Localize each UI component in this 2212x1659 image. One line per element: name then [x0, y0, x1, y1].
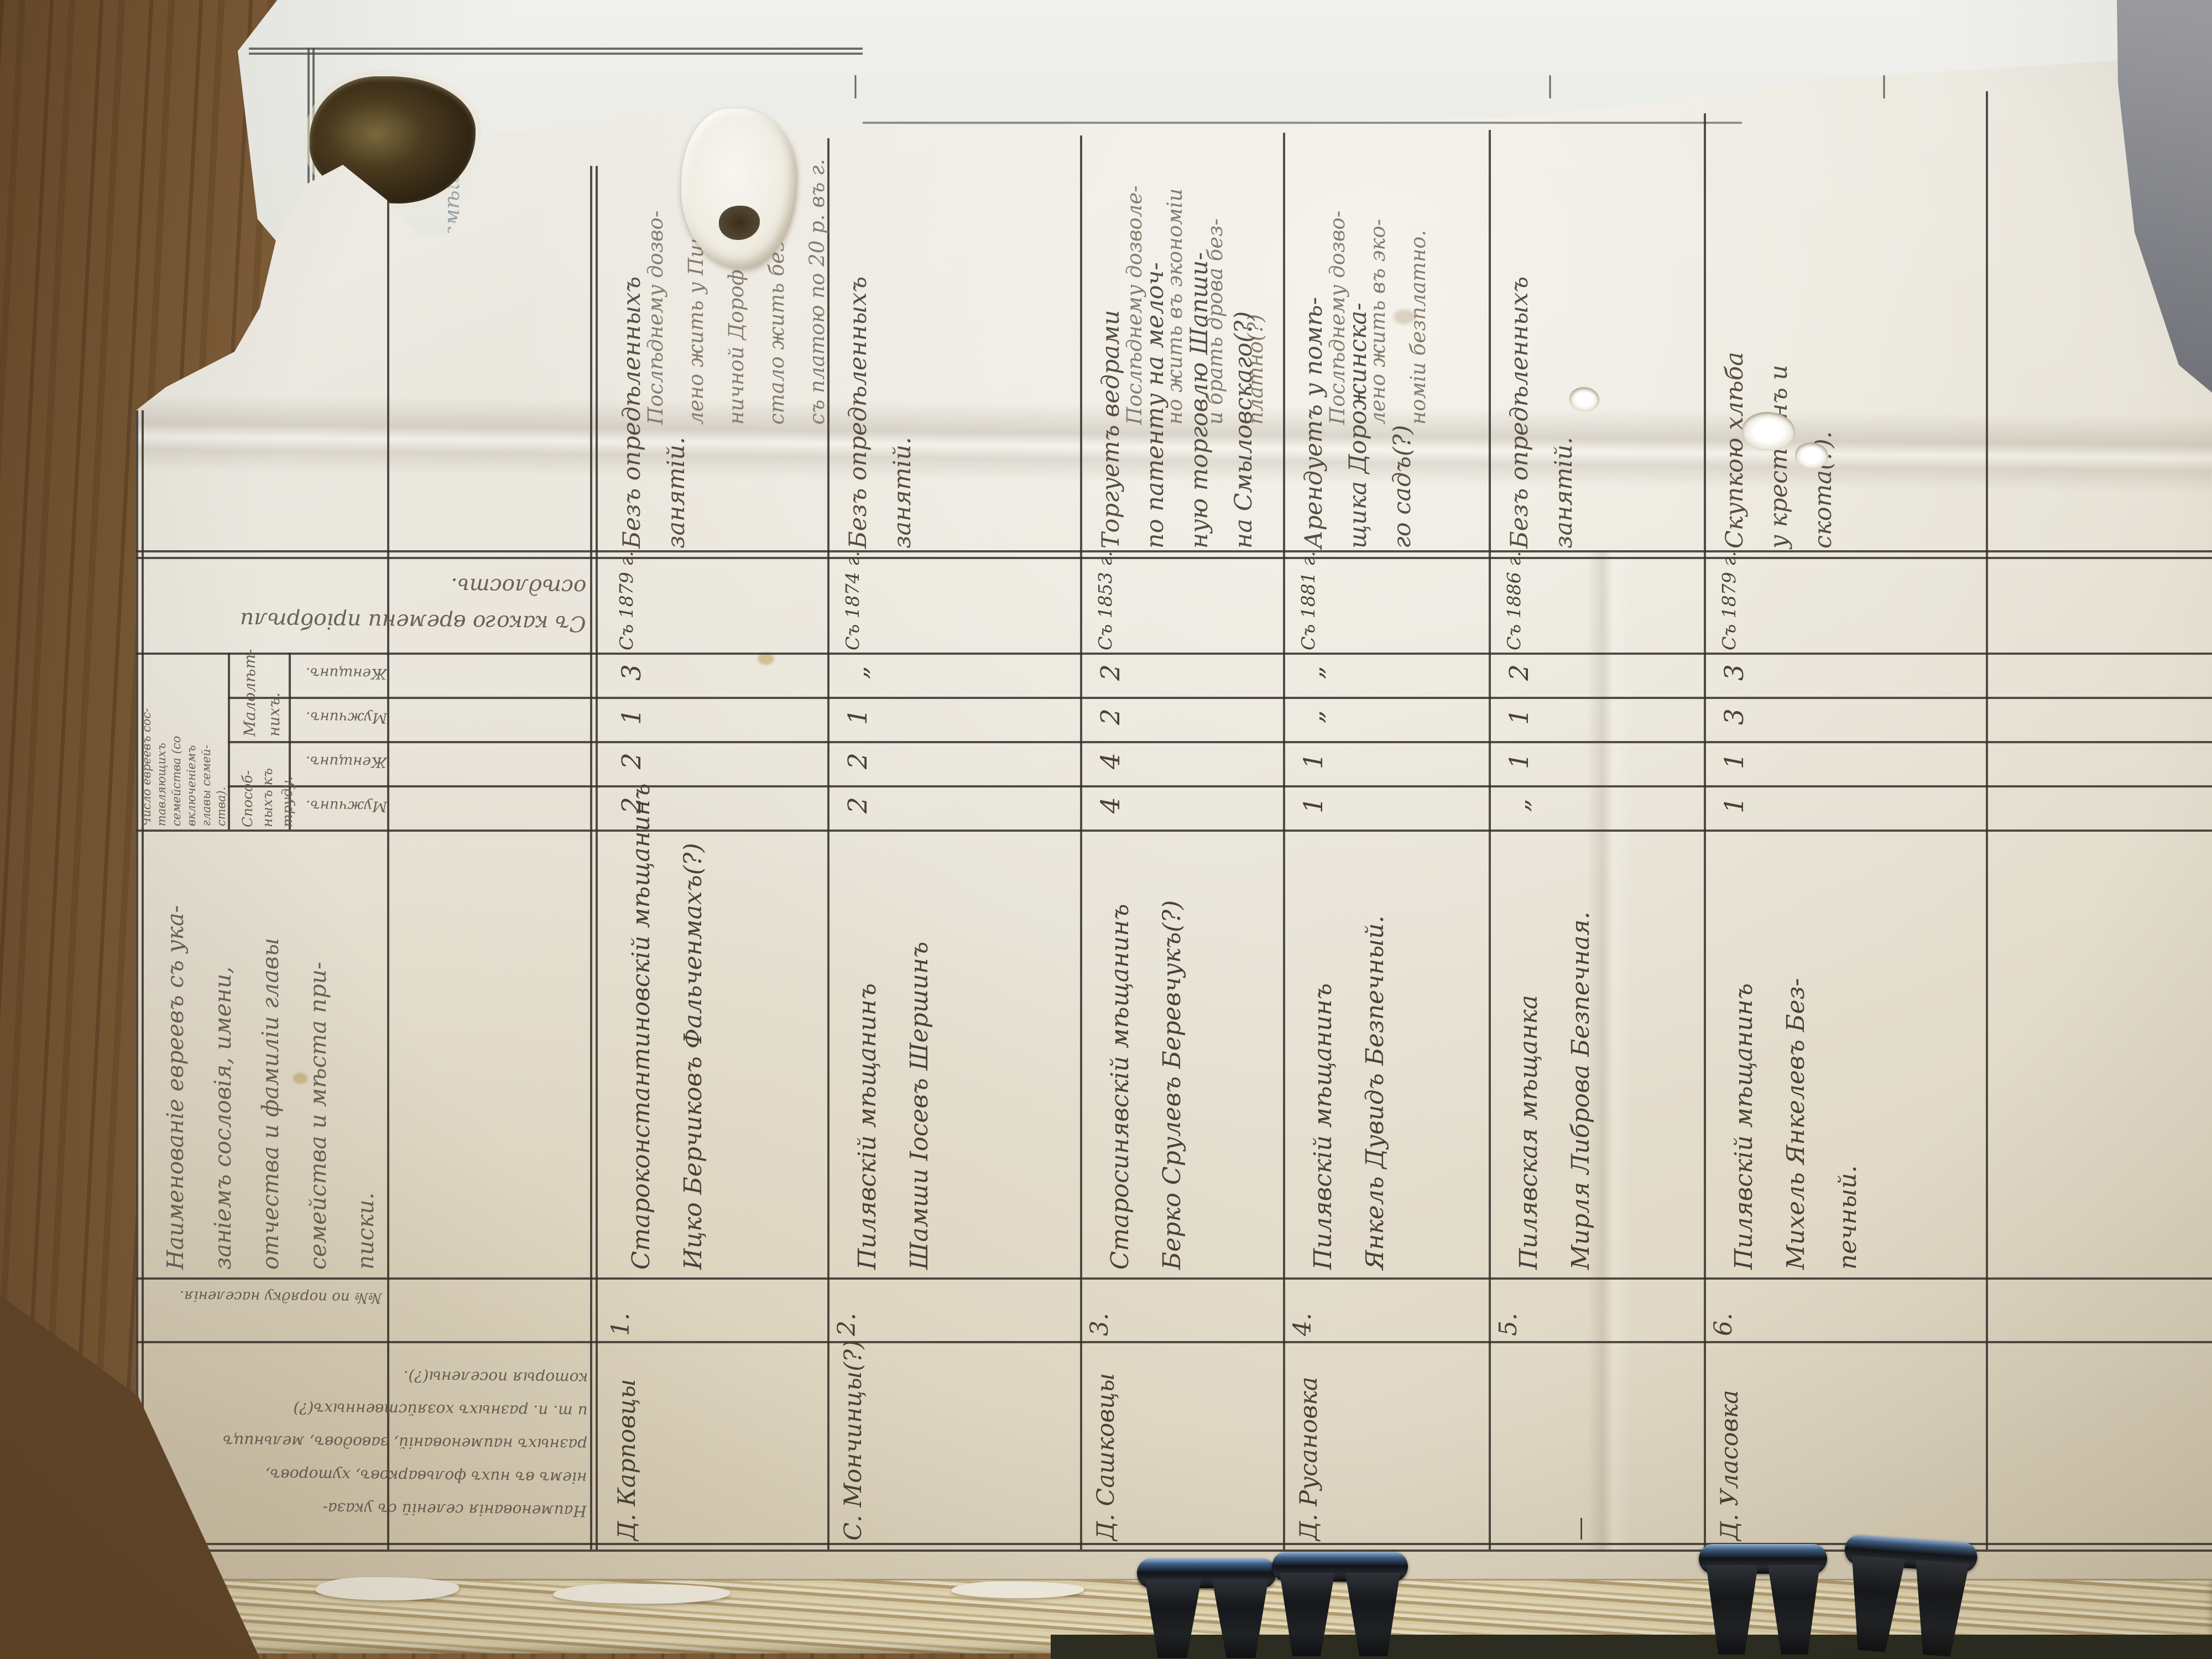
entry-settled-since: Съ 1881 г. — [1297, 554, 1319, 650]
text-line: печный. — [1822, 842, 1874, 1270]
text-line: Пилявскій мѣщанинъ — [842, 842, 894, 1270]
text-line: которыя поселены(?). — [156, 1357, 588, 1395]
text-line: заніемъ сословія, имени, — [199, 843, 247, 1270]
count-able-men: 1 — [1719, 783, 1750, 827]
row-label-women: Женщинъ. — [294, 747, 387, 770]
binder-clip-prong — [1139, 1579, 1204, 1658]
count-able-women: 1 — [1298, 739, 1329, 783]
count-able-women: 2 — [617, 739, 647, 783]
column-header-settled-since: Съ какого времени пріобрѣлиосѣдлость. — [165, 564, 586, 641]
entry-occupation: Арендуетъ у помѣ-щика Дорожинска-го садъ… — [1292, 148, 1425, 549]
text-line: Ицко Берчиковъ Фальченмахъ(?) — [667, 842, 719, 1270]
text-line: и т. п. разныхъ хозяйственныхъ(?) — [156, 1390, 588, 1428]
photo-canvas: вреченія смѣш… ныхъ Демковъ и шныхъ и ве… — [0, 0, 2212, 1659]
text-line: Михель Янкелевъ Без- — [1770, 842, 1822, 1270]
text-line: Шамши Іосевъ Шершинъ — [894, 842, 946, 1270]
count-able-men: 1 — [1298, 783, 1329, 827]
text-line: Безъ опредѣленныхъ — [836, 148, 880, 549]
binder-clip-prong — [1839, 1555, 1908, 1653]
text-line: Берко Срулевъ Беревчукъ(?) — [1146, 842, 1198, 1270]
text-line: Наименованіе евреевъ съ ука- — [152, 843, 199, 1270]
torn-hole — [1742, 412, 1795, 451]
binder-clip — [1137, 1558, 1276, 1659]
binder-clip-prong — [1700, 1565, 1760, 1655]
count-minor-women: „ — [843, 650, 873, 695]
entry-name: Старосинявскій мѣщанинъБерко Срулевъ Бер… — [1094, 842, 1198, 1270]
row-label-men: Мужчинъ. — [294, 703, 387, 726]
text-line: щика Дорожинска- — [1336, 148, 1380, 549]
text-line: писки. — [342, 843, 389, 1270]
entry-village: Д. Русановка — [1295, 1343, 1323, 1541]
entry-name: Пилявскій мѣщанинъМихель Янкелевъ Без-пе… — [1718, 842, 1874, 1270]
entry-village: Д. Карповцы — [613, 1343, 641, 1541]
entry-note: — — [1533, 45, 1563, 128]
paper-shred — [951, 1582, 1084, 1598]
count-able-men: „ — [1504, 783, 1535, 827]
text-line: скота(?). — [1801, 148, 1845, 549]
table-rule — [136, 410, 138, 1550]
text-line: тавляющихъ — [154, 656, 169, 826]
count-minor-women: „ — [1298, 650, 1329, 695]
entry-occupation: Скупкою хлѣбау крестьянъ искота(?). — [1713, 148, 1845, 549]
text-line: ніемъ въ нихъ фольварковъ, хуторовъ, — [155, 1457, 587, 1494]
text-line: Съ какого времени пріобрѣли — [165, 601, 586, 641]
paper-shred — [553, 1584, 730, 1604]
binder-clip — [1272, 1552, 1408, 1659]
binder-clip-prong — [1766, 1565, 1826, 1655]
torn-hole — [1795, 442, 1828, 469]
table-rule — [1986, 91, 1988, 1550]
count-minor-women: 3 — [1719, 650, 1750, 695]
ledger-entry: — Безъ опредѣленныхъзанятій. Съ 1874 г. … — [827, 0, 1082, 1659]
entry-name: Пилявская мѣщанкаМирля Либрова Безпечная… — [1503, 842, 1607, 1270]
binder-clip-prong — [1907, 1560, 1975, 1658]
text-line: Пилявскій мѣщанинъ — [1718, 842, 1770, 1270]
text-line: Малолѣт- — [238, 655, 262, 737]
entry-number: 3. — [1086, 1274, 1114, 1336]
text-line: занятій. — [880, 148, 925, 549]
count-minor-men: 1 — [843, 695, 873, 739]
column-header-minors: Малолѣт-нихъ. — [238, 655, 286, 737]
count-able-women: 4 — [1095, 739, 1126, 783]
count-able-women: 1 — [1504, 739, 1535, 783]
entry-settled-since: Съ 1886 г. — [1503, 554, 1525, 650]
binder-clip-prong — [1273, 1573, 1337, 1656]
text-line: Староконстантиновскій мѣщанинъ — [615, 842, 667, 1270]
entry-occupation: Безъ опредѣленныхъзанятій. — [836, 148, 925, 549]
text-line: занятій. — [1542, 148, 1586, 549]
text-line: Мирля Либрова Безпечная. — [1555, 842, 1607, 1270]
binder-clip — [1699, 1544, 1827, 1659]
text-line: ную торговлю Шапши- — [1177, 148, 1222, 549]
text-line: нихъ. — [262, 655, 286, 737]
count-minor-men: 3 — [1719, 695, 1750, 739]
count-able-men: 2 — [843, 783, 873, 827]
column-header-villages: Наименованія селеній съ указа-ніемъ въ н… — [155, 1357, 588, 1527]
column-header-names: Наименованіе евреевъ съ ука-заніемъ сосл… — [152, 843, 389, 1270]
entry-name: Пилявскій мѣщанинъШамши Іосевъ Шершинъ — [842, 842, 946, 1270]
text-line: го садъ(?) — [1380, 148, 1425, 549]
count-minor-women: 2 — [1504, 650, 1535, 695]
text-line: Арендуетъ у помѣ- — [1292, 148, 1336, 549]
entry-note: — — [1867, 45, 1897, 128]
count-minor-men: 1 — [617, 695, 647, 739]
text-line: ства). — [214, 656, 229, 826]
entry-number: 6. — [1709, 1274, 1738, 1336]
binder-clip-prong — [1209, 1579, 1275, 1658]
paper-shred — [315, 1577, 459, 1600]
entry-number: 4. — [1288, 1274, 1317, 1336]
entry-note: — — [838, 45, 868, 128]
count-minor-men: 2 — [1095, 695, 1126, 739]
entry-number: 5. — [1494, 1274, 1522, 1336]
entry-settled-since: Съ 1853 г. — [1094, 554, 1116, 650]
ledger-entry: — Скупкою хлѣбау крестьянъ искота(?). Съ… — [1704, 0, 1958, 1659]
text-line: семейства (со — [169, 656, 184, 826]
entry-name: Староконстантиновскій мѣщанинъИцко Берчи… — [615, 842, 719, 1270]
text-line: Способ- — [238, 743, 258, 827]
text-line: осѣдлость. — [166, 564, 587, 605]
entry-number: 2. — [833, 1274, 861, 1336]
entry-village: Д. Сашковцы — [1092, 1343, 1120, 1541]
count-able-men: 4 — [1095, 783, 1126, 827]
entry-occupation: Безъ опредѣленныхъзанятій. — [1498, 148, 1586, 549]
count-minor-men: 1 — [1504, 695, 1535, 739]
text-line: ныхъ къ — [258, 743, 278, 827]
text-line: Число евреевъ сос- — [139, 656, 154, 826]
text-line: отчества и фамиліи главы — [247, 843, 294, 1270]
text-line: Наименованія селеній съ указа- — [155, 1490, 587, 1527]
count-able-women: 2 — [843, 739, 873, 783]
binder-clip — [1838, 1534, 1979, 1659]
text-line: Пилявская мѣщанка — [1503, 842, 1555, 1270]
text-line: Янкель Дувидъ Безпечный. — [1349, 842, 1401, 1270]
text-line: главы семей- — [199, 656, 214, 826]
text-line: разныхъ наименованій, заводовъ, мельницъ — [156, 1423, 588, 1461]
text-line: включеніемъ — [184, 656, 199, 826]
entry-settled-since: Съ 1879 г. — [615, 554, 637, 650]
count-minor-men: „ — [1298, 695, 1329, 739]
table-rule — [142, 410, 144, 1550]
binder-clip-prong — [1343, 1573, 1407, 1656]
column-header-number: №№ по порядку населенія. — [182, 1287, 382, 1306]
row-label-women: Женщинъ. — [294, 659, 387, 682]
count-minor-women: 3 — [617, 650, 647, 695]
column-header-family-count: Число евреевъ сос-тавляющихъсемейства (с… — [139, 656, 229, 826]
entry-name: Пилявскій мѣщанинъЯнкель Дувидъ Безпечны… — [1297, 842, 1401, 1270]
entry-settled-since: Съ 1874 г. — [842, 554, 863, 650]
text-line: Безъ опредѣленныхъ — [1498, 148, 1542, 549]
crumpled-tear — [681, 108, 797, 269]
row-label-men: Мужчинъ. — [294, 791, 387, 815]
text-line: Скупкою хлѣба — [1713, 148, 1757, 549]
text-line: семейства и мѣста при- — [294, 843, 342, 1270]
text-line: у крестьянъ и — [1757, 148, 1801, 549]
column-header-able-bodied: Способ-ныхъ кътруду. — [238, 743, 298, 827]
entry-village: С. Мончинцы(?) — [839, 1343, 867, 1541]
entry-settled-since: Съ 1879 г. — [1718, 554, 1740, 650]
count-able-women: 1 — [1719, 739, 1750, 783]
text-line: Торгуетъ ведрами — [1089, 148, 1133, 549]
text-line: на Смыловскаго(?) — [1222, 148, 1266, 549]
torn-hole — [1569, 387, 1599, 411]
entry-number: 1. — [607, 1274, 635, 1336]
text-line: Старосинявскій мѣщанинъ — [1094, 842, 1146, 1270]
entry-village: Д. Уласовка — [1716, 1343, 1744, 1541]
text-line: Безъ опредѣленныхъ — [610, 148, 654, 549]
entry-occupation: Торгуетъ ведрамипо патенту на мелоч-ную … — [1089, 148, 1266, 549]
text-line: по патенту на мелоч- — [1133, 148, 1177, 549]
text-line: Пилявскій мѣщанинъ — [1297, 842, 1349, 1270]
entry-village: — — [1566, 1343, 1594, 1541]
count-minor-women: 2 — [1095, 650, 1126, 695]
